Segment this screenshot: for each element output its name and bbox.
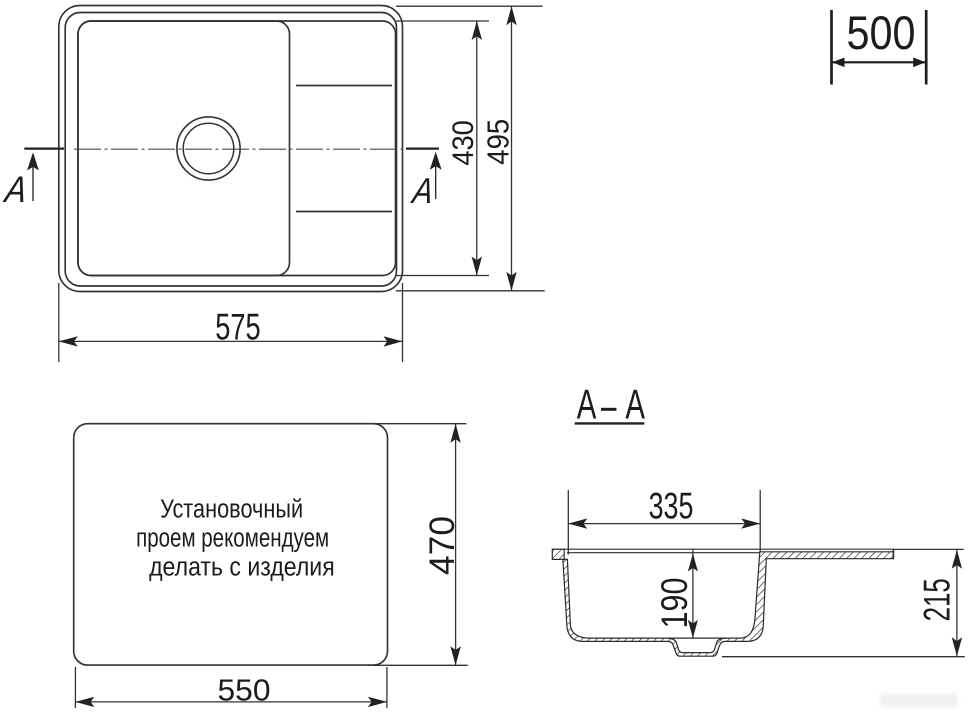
svg-text:делать с изделия: делать с изделия: [149, 554, 335, 582]
svg-text:Установочный: Установочный: [160, 496, 303, 524]
svg-text:550: 550: [218, 674, 271, 708]
svg-text:500: 500: [847, 7, 916, 60]
svg-text:470: 470: [422, 516, 462, 575]
svg-text:215: 215: [917, 578, 958, 621]
svg-text:495: 495: [482, 119, 516, 165]
svg-text:A: A: [1, 168, 30, 210]
svg-text:A: A: [577, 381, 597, 428]
svg-text:190: 190: [653, 578, 695, 629]
svg-text:335: 335: [649, 485, 694, 527]
svg-text:A: A: [625, 381, 645, 428]
svg-text:проем рекомендуем: проем рекомендуем: [136, 524, 329, 552]
svg-text:575: 575: [215, 305, 260, 347]
svg-text:430: 430: [447, 120, 480, 166]
svg-text:A: A: [409, 170, 436, 211]
